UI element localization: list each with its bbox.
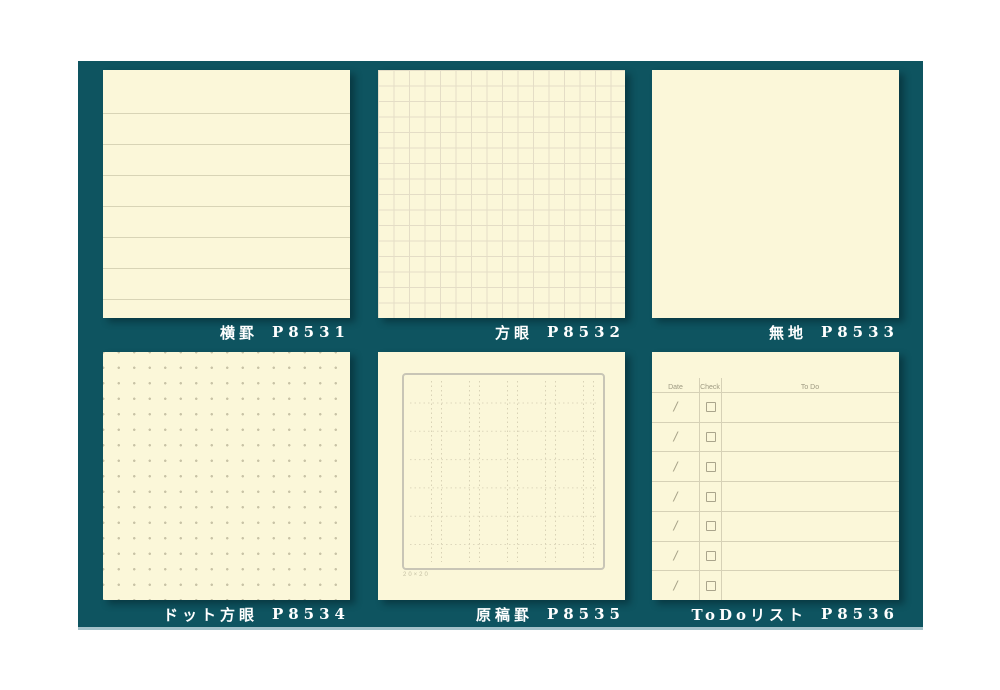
memo-pad-ruled (103, 70, 350, 318)
product-name: 原稿罫 (476, 604, 533, 625)
todo-checkbox (706, 551, 716, 561)
product-code: P8532 (547, 323, 625, 341)
todo-date-slash: / (652, 518, 699, 534)
todo-date-slash: / (652, 458, 699, 474)
memo-pad-todo: Date Check To Do /////// (652, 352, 899, 600)
todo-checkbox (706, 581, 716, 591)
product-name: 方眼 (495, 322, 533, 343)
todo-top-margin (652, 352, 899, 380)
todo-row: / (652, 482, 899, 512)
memo-pad-grid (378, 70, 625, 318)
todo-header-todo: To Do (721, 384, 899, 391)
todo-row: / (652, 571, 899, 600)
todo-header-check: Check (696, 384, 724, 391)
todo-checkbox (706, 492, 716, 502)
todo-row: / (652, 452, 899, 482)
todo-date-slash: / (652, 428, 699, 444)
todo-checkbox (706, 521, 716, 531)
product-name: ToDoリスト (692, 604, 807, 625)
product-name: ドット方眼 (163, 604, 258, 625)
manuscript-footnote: 20×20 (403, 572, 430, 578)
todo-header-date: Date (652, 384, 699, 391)
product-label-grid: 方眼 P8532 (378, 323, 625, 341)
todo-column-divider (721, 378, 722, 600)
product-label-todo: ToDoリスト P8536 (652, 605, 899, 623)
memo-pad-dot-grid (103, 352, 350, 600)
product-label-ruled: 横罫 P8531 (103, 323, 350, 341)
product-code: P8534 (272, 605, 350, 623)
todo-checkbox (706, 462, 716, 472)
product-label-manuscript: 原稿罫 P8535 (378, 605, 625, 623)
product-label-dot-grid: ドット方眼 P8534 (103, 605, 350, 623)
todo-column-divider (699, 378, 700, 600)
todo-row: / (652, 423, 899, 453)
product-code: P8536 (821, 605, 899, 623)
todo-date-slash: / (652, 577, 699, 593)
product-code: P8535 (547, 605, 625, 623)
manuscript-grid-frame (402, 373, 605, 570)
product-name: 横罫 (220, 322, 258, 343)
todo-header-row: Date Check To Do (652, 380, 899, 393)
todo-date-slash: / (652, 488, 699, 504)
product-board: 横罫 P8531 方眼 P8532 無地 P8533 20×20 Date Ch… (78, 61, 923, 630)
todo-checkbox (706, 432, 716, 442)
todo-date-slash: / (652, 399, 699, 415)
product-code: P8533 (821, 323, 899, 341)
todo-rows: /////// (652, 393, 899, 600)
todo-date-slash: / (652, 547, 699, 563)
product-code: P8531 (272, 323, 350, 341)
todo-row: / (652, 393, 899, 423)
memo-pad-plain (652, 70, 899, 318)
product-label-plain: 無地 P8533 (652, 323, 899, 341)
todo-checkbox (706, 402, 716, 412)
todo-row: / (652, 542, 899, 572)
memo-pad-manuscript: 20×20 (378, 352, 625, 600)
product-name: 無地 (769, 322, 807, 343)
todo-row: / (652, 512, 899, 542)
